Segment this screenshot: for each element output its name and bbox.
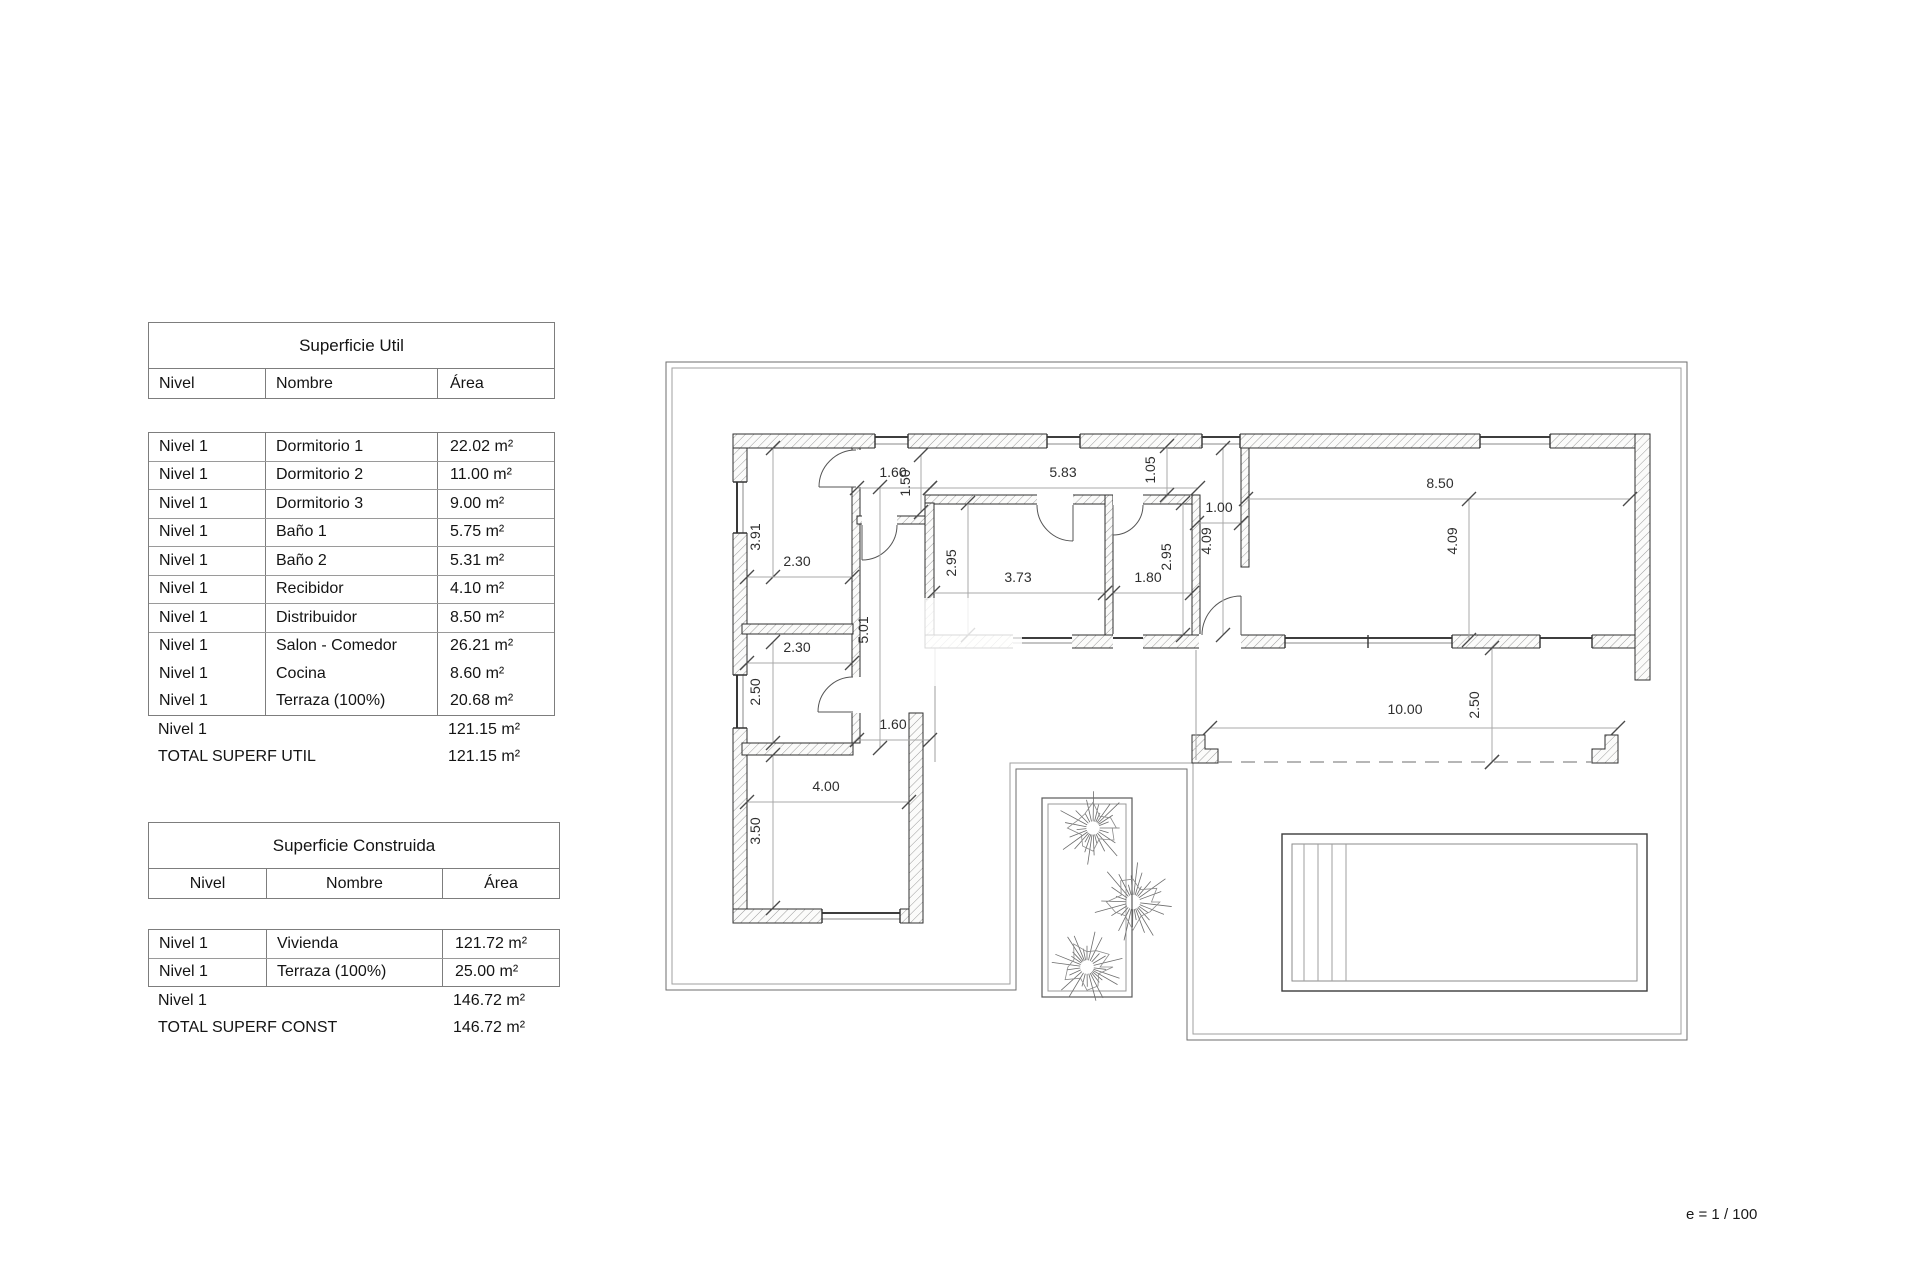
door-swing-icon [1202, 596, 1241, 635]
dimension-label: 2.50 [747, 678, 763, 705]
window-icon [732, 675, 748, 728]
dimension-label: 2.30 [783, 639, 810, 655]
dimension-label: 4.09 [1198, 527, 1214, 554]
window-icon [875, 433, 908, 449]
watermark [890, 598, 1022, 686]
tree-icon [1140, 891, 1161, 899]
window-icon [732, 482, 748, 533]
floor-plan: 1.605.831.501.051.008.504.094.093.912.30… [0, 0, 1920, 1280]
scale-note: e = 1 / 100 [1686, 1206, 1757, 1223]
trees [1052, 791, 1172, 1000]
dimension-label: 1.05 [1142, 456, 1158, 483]
dimension-label: 5.01 [855, 616, 871, 643]
door-opening [1113, 494, 1143, 505]
dimension-label: 2.30 [783, 553, 810, 569]
dashed-terrace-line [1218, 755, 1593, 769]
pergola-post [1592, 735, 1618, 763]
tree-icon [1077, 829, 1087, 830]
dimension-label: 1.50 [897, 469, 913, 496]
dimension-label: 8.50 [1426, 475, 1453, 491]
drawing-sheet: Superficie Util Nivel Nombre Área Nivel … [0, 0, 1920, 1280]
tree-icon [1067, 968, 1080, 970]
dimension-label: 3.73 [1004, 569, 1031, 585]
door-opening [851, 450, 861, 487]
window-icon [822, 908, 900, 924]
door-swing-icon [1037, 505, 1073, 541]
door-swing-icon [819, 450, 856, 487]
tree-icon [1093, 970, 1118, 984]
dimension-label: 4.00 [812, 778, 839, 794]
door-opening [851, 677, 861, 713]
dimension-label: 4.09 [1444, 527, 1460, 554]
window-icon [1285, 634, 1452, 649]
tree-icon [1097, 833, 1117, 856]
door-swing-icon [1113, 505, 1143, 535]
planter [1042, 791, 1172, 1000]
tree-icon [1107, 872, 1128, 897]
tree-icon [1093, 835, 1094, 856]
building-walls [733, 434, 1650, 923]
tree-icon [1070, 830, 1087, 837]
tree-icon [1068, 937, 1084, 961]
window-icon [1202, 433, 1240, 449]
tree-icon [1101, 901, 1126, 902]
dimension-label: 3.50 [747, 817, 763, 844]
pergola-posts [1192, 735, 1618, 763]
tree-icon [1094, 968, 1106, 970]
dimension-label: 1.00 [1205, 499, 1232, 515]
dimension-label: 1.60 [879, 716, 906, 732]
tree-icon [1089, 932, 1095, 961]
dimension-label: 2.95 [1158, 543, 1174, 570]
tree-icon [1095, 904, 1126, 913]
window-icon [1540, 634, 1592, 649]
window-icon [1047, 433, 1080, 449]
dimension-label: 10.00 [1387, 701, 1422, 717]
tree-icon [1137, 908, 1154, 935]
tree-icon [1074, 936, 1084, 961]
tree-icon [1093, 969, 1119, 978]
door-opening [1037, 494, 1073, 505]
pool-steps [1304, 844, 1346, 981]
dimension-label: 3.91 [747, 523, 763, 550]
dimension-label: 2.95 [943, 549, 959, 576]
door-swing-icon [818, 677, 853, 712]
tree-icon [1094, 958, 1123, 965]
shrub-outline-icon [1067, 802, 1116, 851]
window-icon [1113, 634, 1143, 649]
tree-icon [1099, 822, 1108, 826]
window-icon [1480, 433, 1550, 449]
windows [732, 433, 1592, 924]
dimension-label: 2.50 [1466, 691, 1482, 718]
tree-icon [1099, 830, 1108, 833]
tree-icon [1136, 909, 1145, 933]
dimension-label: 5.83 [1049, 464, 1076, 480]
door-opening [1199, 634, 1241, 649]
shrub-outline-icon [1065, 944, 1113, 990]
pool [1282, 834, 1647, 991]
